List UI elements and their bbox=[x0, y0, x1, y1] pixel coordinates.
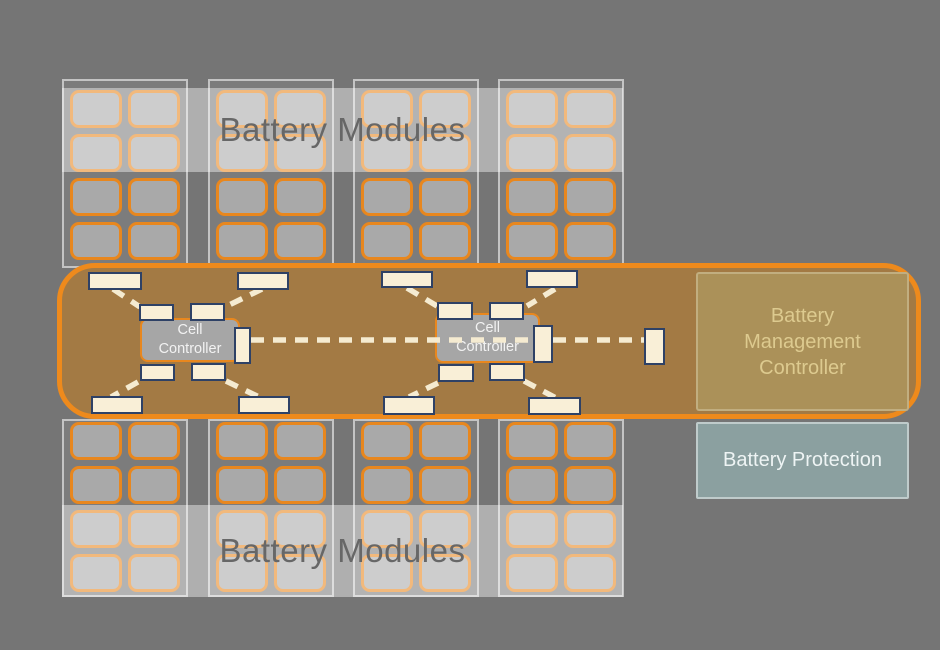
controller-tap bbox=[191, 363, 226, 381]
battery-cell bbox=[128, 222, 180, 260]
battery-protection-label: Battery Protection bbox=[723, 449, 882, 472]
battery-cell bbox=[70, 466, 122, 504]
comm-connector bbox=[533, 325, 553, 363]
controller-tap bbox=[139, 304, 174, 321]
battery-cell bbox=[361, 222, 413, 260]
module-tap bbox=[381, 271, 433, 288]
controller-tap bbox=[489, 363, 525, 381]
battery-cell bbox=[274, 466, 326, 504]
battery-cell bbox=[361, 178, 413, 216]
battery-cell bbox=[216, 422, 268, 460]
battery-cell bbox=[128, 178, 180, 216]
battery-cell bbox=[216, 222, 268, 260]
battery-cell bbox=[506, 222, 558, 260]
bmc-label-line2: Management bbox=[744, 329, 861, 355]
cell-controller-1: Cell Controller bbox=[140, 318, 240, 362]
battery-cell bbox=[70, 222, 122, 260]
battery-protection: Battery Protection bbox=[696, 422, 909, 499]
module-tap bbox=[91, 396, 143, 414]
comm-connector bbox=[644, 328, 665, 365]
battery-modules-label-bottom: Battery Modules bbox=[220, 532, 466, 570]
module-tap bbox=[528, 397, 581, 415]
module-tap bbox=[237, 272, 289, 290]
battery-cell bbox=[419, 222, 471, 260]
battery-modules-label-top: Battery Modules bbox=[220, 111, 466, 149]
cell-controller-2-label-line1: Cell bbox=[475, 319, 500, 338]
battery-cell bbox=[274, 422, 326, 460]
module-tap bbox=[383, 396, 435, 415]
cell-controller-2: Cell Controller bbox=[435, 313, 540, 363]
battery-cell bbox=[564, 422, 616, 460]
battery-cell bbox=[564, 222, 616, 260]
battery-modules-band-top: Battery Modules bbox=[62, 88, 623, 172]
module-tap bbox=[238, 396, 290, 414]
cell-controller-1-label-line2: Controller bbox=[159, 340, 222, 359]
cell-controller-2-label-line2: Controller bbox=[456, 338, 519, 357]
cell-controller-1-label-line1: Cell bbox=[178, 321, 203, 340]
battery-cell bbox=[274, 222, 326, 260]
controller-tap bbox=[190, 303, 225, 321]
battery-cell bbox=[274, 178, 326, 216]
battery-cell bbox=[361, 466, 413, 504]
battery-cell bbox=[564, 466, 616, 504]
bmc-label-line3: Controller bbox=[759, 355, 846, 381]
battery-cell bbox=[216, 466, 268, 504]
battery-cell bbox=[70, 178, 122, 216]
module-tap bbox=[526, 270, 578, 288]
battery-cell bbox=[506, 466, 558, 504]
battery-cell bbox=[216, 178, 268, 216]
battery-cell bbox=[361, 422, 413, 460]
battery-management-controller: Battery Management Controller bbox=[696, 272, 909, 411]
battery-cell bbox=[564, 178, 616, 216]
battery-system-diagram: Battery Modules Battery Modules Cell Con… bbox=[0, 0, 940, 650]
controller-tap bbox=[438, 364, 474, 382]
battery-cell bbox=[128, 466, 180, 504]
battery-modules-band-bottom: Battery Modules bbox=[62, 505, 623, 597]
battery-cell bbox=[506, 422, 558, 460]
battery-cell bbox=[506, 178, 558, 216]
comm-connector bbox=[234, 327, 251, 364]
bmc-label-line1: Battery bbox=[771, 303, 834, 329]
controller-tap bbox=[140, 364, 175, 381]
module-tap bbox=[88, 272, 142, 290]
controller-tap bbox=[489, 302, 524, 320]
battery-cell bbox=[419, 466, 471, 504]
controller-tap bbox=[437, 302, 473, 320]
battery-cell bbox=[419, 178, 471, 216]
battery-cell bbox=[419, 422, 471, 460]
battery-cell bbox=[128, 422, 180, 460]
battery-cell bbox=[70, 422, 122, 460]
